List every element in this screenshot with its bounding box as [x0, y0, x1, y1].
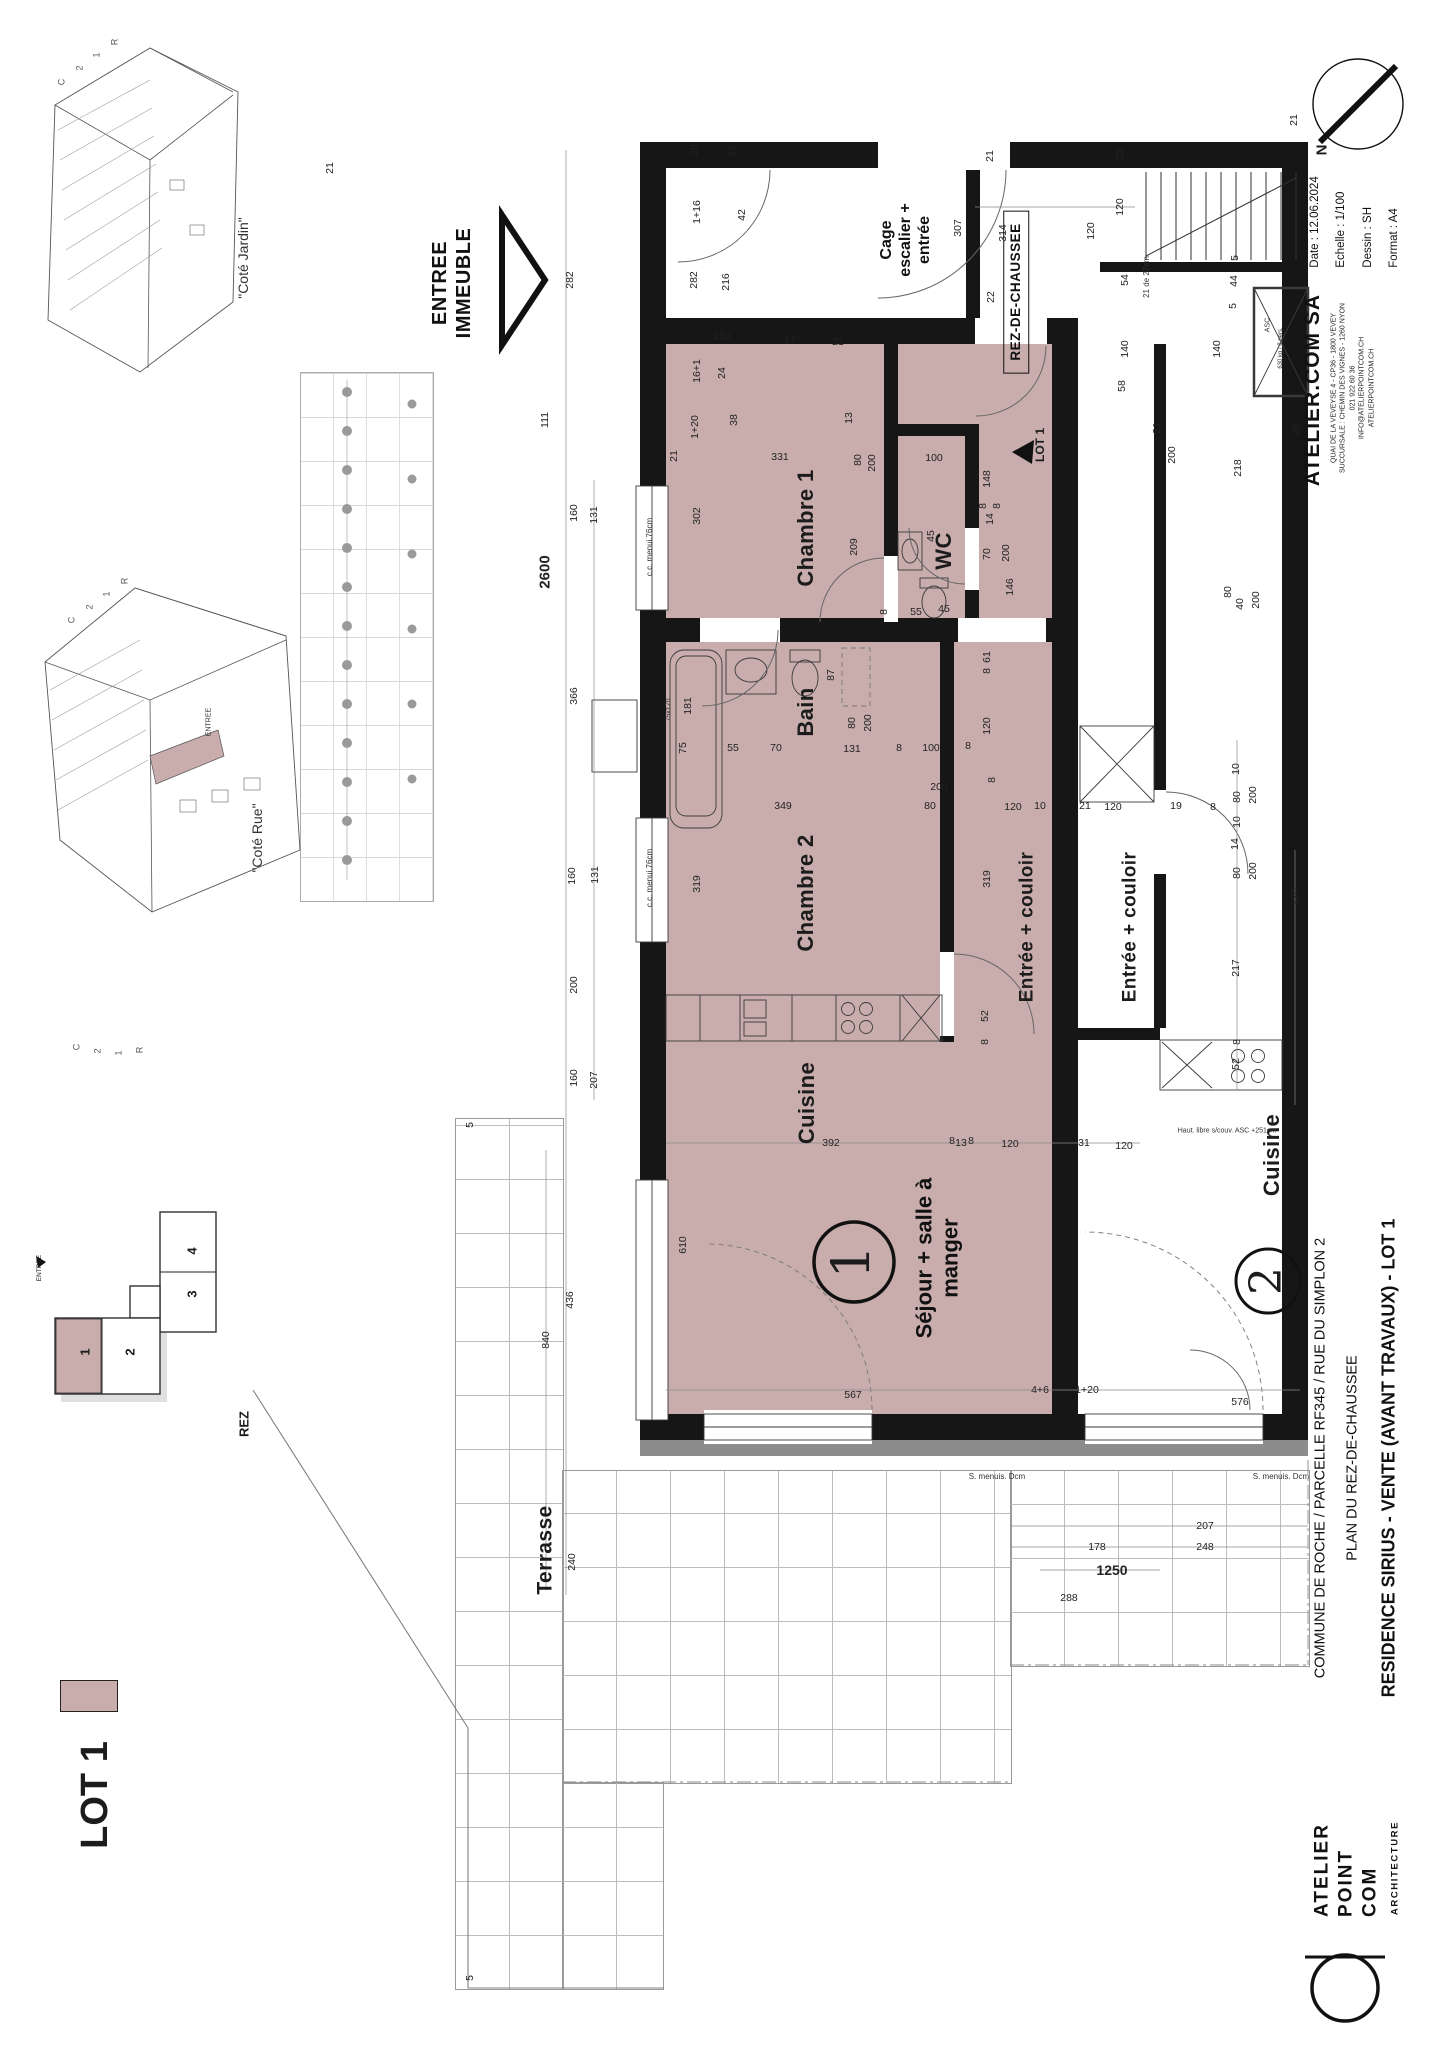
dimension-label: 436 [565, 1291, 576, 1309]
dimension-label: 22 [986, 291, 997, 303]
dimension-label: 140 [1212, 340, 1223, 358]
section-mark: 2 [76, 65, 85, 70]
section-mark: C [73, 1044, 82, 1051]
dimension-label: 26 [1291, 423, 1302, 435]
dimension-label: 8 [987, 777, 998, 783]
dimension-label: 21 [669, 450, 680, 462]
room-label: Entrée + couloir [1121, 852, 1140, 1003]
dimension-label: 2600 [538, 555, 553, 588]
dimension-label: 146 [1005, 578, 1016, 596]
dimension-label: 61 [982, 651, 993, 663]
dimension-label: 282 [689, 271, 700, 289]
terrain-lines [253, 1390, 1308, 1988]
dimension-label: 302 [692, 507, 703, 525]
dimension-label: 131 [590, 866, 601, 884]
dimension-label: 20 [689, 144, 700, 156]
stairs [1146, 172, 1296, 260]
dimension-label: 54 [1120, 274, 1131, 286]
plan-tag: LOT 1 [76, 1741, 114, 1849]
dimension-label: 160 [567, 867, 578, 885]
dimension-label: 288 [1060, 1593, 1078, 1604]
dimension-label: 1250 [1096, 1563, 1127, 1577]
dimension-label: 80 [853, 454, 864, 466]
dimension-label: 120 [1104, 802, 1122, 813]
dimension-label: 8 [980, 1039, 991, 1045]
dimension-label: 1+20 [1075, 1385, 1099, 1396]
dimension-label: 120 [1086, 222, 1097, 240]
dimension-label: 8 [992, 503, 1003, 509]
dimension-label: 181 [683, 697, 694, 715]
dimension-label: 19 [1170, 801, 1182, 812]
room-label: Cuisine [796, 1062, 818, 1144]
dimension-label: 55 [727, 743, 739, 754]
dimension-label: 8 [949, 1136, 955, 1147]
dimension-label: 14 [1230, 838, 1241, 850]
section-mark: R [121, 578, 130, 585]
room-label: Chambre 2 [795, 834, 817, 951]
dimension-label: 42 [737, 209, 748, 221]
dimension-label: 13 [955, 1138, 967, 1149]
dimension-label: 37 [728, 145, 739, 157]
north-arrow-icon [1313, 59, 1403, 149]
unit-number: 1 [826, 1245, 878, 1278]
dimension-label: 100 [922, 743, 940, 754]
room-label-sejour: Séjour + salle à manger [912, 1178, 965, 1339]
dimension-label: 8 [978, 503, 989, 509]
dimension-label: 80 [1232, 791, 1243, 803]
section-mark: 2 [86, 604, 95, 609]
dimension-label: 10 [1231, 763, 1242, 775]
dimension-label: 200 [1001, 544, 1012, 562]
note-label: c.c. menui.76cm [646, 849, 654, 907]
dimension-label: 131 [843, 744, 861, 755]
dimension-label: 58 [1117, 380, 1128, 392]
dimension-label: 45 [926, 530, 937, 542]
note-label: 21 de 27cm [1143, 256, 1151, 298]
entrance-label: ENTREE IMMEUBLE [428, 228, 476, 339]
dimension-label: 319 [982, 870, 993, 888]
kitchen2-counter [1160, 1040, 1282, 1090]
logo-text: ATELIER POINT COM [1310, 1823, 1381, 1917]
dimension-label: 8 [1232, 1039, 1243, 1045]
dimension-label: 120 [1001, 1139, 1019, 1150]
dimension-label: 5 [465, 1122, 476, 1128]
unit-number: 2 [1245, 1267, 1289, 1295]
keyplan-label: 4 [186, 1247, 199, 1254]
project-line2: PLAN DU REZ-DE-CHAUSSEE [1337, 1219, 1369, 1698]
format-field: Format : A4 [1381, 176, 1407, 267]
dimension-label: 240 [567, 1553, 578, 1571]
section-mark: 1 [115, 1050, 124, 1055]
dimension-label: 8 [965, 741, 971, 752]
dimension-label: 840 [541, 1331, 552, 1349]
titleblock-meta: Date : 12.06.2024 Echelle : 1/100 Dessin… [1302, 176, 1408, 267]
dimension-label: 21 [1079, 801, 1091, 812]
dimension-label: 567 [844, 1390, 862, 1401]
dimension-label: 200 [1248, 862, 1259, 880]
dimension-label: 160 [569, 1069, 580, 1087]
dimension-label: 80 [924, 801, 936, 812]
dimension-label: 366 [569, 687, 580, 705]
dimension-label: 8 [982, 668, 993, 674]
dimension-label: 5 [1228, 303, 1239, 309]
dimension-label: 148 [982, 470, 993, 488]
logo-icon [1305, 1955, 1385, 2021]
keyplan-label: ENTREE [37, 1255, 44, 1281]
scale-field: Echelle : 1/100 [1329, 176, 1355, 267]
dimension-label: 52 [1231, 1058, 1242, 1070]
dimension-label: 1+16 [692, 200, 703, 224]
note-label: S. menuis. Dcm [969, 1473, 1025, 1481]
dimension-label: 80 [1223, 586, 1234, 598]
note-label: c.c. menui.76cm [646, 518, 654, 576]
logo-subtitle: ARCHITECTURE [1391, 1821, 1402, 1915]
dimension-label: 21 [832, 337, 844, 348]
section-mark: 1 [93, 52, 102, 57]
dimension-label: 140 [1120, 340, 1131, 358]
plan-tag: N [1315, 145, 1330, 156]
dimension-label: 209 [849, 538, 860, 556]
keyplan-label: 2 [124, 1348, 137, 1355]
dimension-label: 200 [1248, 786, 1259, 804]
dimension-label: 10 [1034, 801, 1046, 812]
view-label: "Coté Rue" [250, 803, 264, 872]
dimension-label: 200 [569, 976, 580, 994]
floor-plan-sheet: Chambre 1WCBainChambre 2Entrée + couloir… [0, 0, 1448, 2047]
dimension-label: 200 [867, 454, 878, 472]
dimension-label: 8 [896, 743, 902, 754]
firm-address: QUAI DE LA VEVEYSE 4 - CP36 - 1800 VEVEY… [1329, 303, 1376, 473]
dimension-label: 44 [1229, 275, 1240, 287]
keyplan-label: 1 [79, 1348, 92, 1355]
dimension-label: 40 [1235, 598, 1246, 610]
dimension-label: 21 [1115, 148, 1126, 160]
dimension-label: 21 [985, 150, 996, 162]
section-mark: R [111, 39, 120, 46]
dimension-label: 80 [1232, 867, 1243, 879]
dimension-label: 217 [1231, 959, 1242, 977]
dimension-label: 250 [713, 331, 731, 342]
dimension-label: 31 [1078, 1138, 1090, 1149]
dimension-label: 80 [847, 717, 858, 729]
view-label: ENTREE [206, 708, 213, 736]
dimension-label: 120 [1290, 888, 1301, 906]
dimension-label: 75 [678, 742, 689, 754]
dimension-label: 307 [953, 219, 964, 237]
dimension-label: 21 [325, 162, 336, 174]
dimension-label: 160 [569, 504, 580, 522]
dimension-label: 4+6 [1031, 1385, 1049, 1396]
dimension-label: 200 [1251, 591, 1262, 609]
dimension-label: 207 [589, 1071, 600, 1089]
dimension-label: 17 [784, 335, 796, 346]
view-label: "Coté Jardin" [236, 217, 250, 299]
dimension-label: 24 [717, 367, 728, 379]
dimension-label: 70 [982, 548, 993, 560]
dimension-label: 216 [721, 273, 732, 291]
note-label: 630 kg / 8 pers. [1278, 327, 1284, 368]
note-label: 75x170 [666, 699, 673, 722]
entrance-arrow-icon [502, 215, 545, 345]
room-label: Entrée + couloir [1018, 852, 1037, 1003]
dimension-label: 5 [465, 1975, 476, 1981]
project-line3: RESIDENCE SIRIUS - VENTE (AVANT TRAVAUX)… [1369, 1219, 1409, 1698]
plant-icons [347, 380, 412, 880]
room-label: Chambre 1 [795, 469, 817, 586]
dimension-label: 207 [1196, 1521, 1214, 1532]
dimension-label: 610 [678, 1236, 689, 1254]
key-plan [36, 1212, 216, 1402]
dimension-label: 31 [1152, 422, 1163, 434]
plan-tag: LOT 1 [1034, 428, 1046, 462]
dimension-label: 319 [692, 875, 703, 893]
dimension-label: 248 [1196, 1542, 1214, 1553]
dimension-label: 331 [771, 452, 789, 463]
room-label: Terrasse [535, 1505, 556, 1594]
section-mark: 2 [94, 1048, 103, 1053]
level-box: REZ-DE-CHAUSSEE [1003, 210, 1029, 373]
stairwell-label: Cage escalier + entrée [877, 203, 935, 276]
dimension-label: 8 [1210, 802, 1216, 813]
dimension-label: 45 [938, 604, 950, 615]
firm-name: ATELIER.COM SA [1301, 294, 1325, 486]
date-field: Date : 12.06.2024 [1302, 176, 1328, 267]
room-label: Cuisine [1261, 1114, 1283, 1196]
dimension-label: 120 [982, 717, 993, 735]
dimension-label: 349 [774, 801, 792, 812]
drawn-field: Dessin : SH [1355, 176, 1381, 267]
dimension-label: 392 [822, 1138, 840, 1149]
note-label: ASC [1265, 318, 1272, 332]
axon-cote-jardin [48, 48, 238, 372]
dimension-label: 55 [910, 607, 922, 618]
dimension-label: 282 [565, 271, 576, 289]
dimension-label: 131 [589, 506, 600, 524]
dimension-label: 120 [1004, 802, 1022, 813]
dimension-label: 21 [1289, 114, 1300, 126]
dimension-label: 13 [844, 412, 855, 424]
lot1-legend-swatch [60, 1680, 118, 1712]
dimension-label: 16+1 [692, 359, 703, 383]
section-mark: R [136, 1047, 145, 1054]
note-label: Haut. libre s/couv. ASC +251cm [1178, 1128, 1277, 1135]
section-mark: 1 [103, 591, 112, 596]
dimension-label: 120 [1115, 1141, 1133, 1152]
room-label: Bain [795, 687, 817, 736]
dimension-label: 87 [826, 669, 837, 681]
dimension-label: 200 [1167, 446, 1178, 464]
dimension-label: 70 [770, 743, 782, 754]
keyplan-label: 3 [186, 1290, 199, 1297]
dimension-label: 200 [930, 782, 948, 793]
section-mark: C [58, 79, 67, 86]
section-mark: C [68, 617, 77, 624]
dimension-label: 8 [879, 609, 890, 615]
project-title-block: COMMUNE DE ROCHE / PARCELLE RF345 / RUE … [1305, 1219, 1408, 1698]
dimension-label: 576 [1231, 1397, 1249, 1408]
dimension-label: 178 [1088, 1542, 1106, 1553]
dimension-label: 100 [925, 453, 943, 464]
dimension-label: 218 [1233, 459, 1244, 477]
dimension-label: 5 [1230, 255, 1241, 261]
dimension-label: 14 [985, 513, 996, 525]
dimension-label: 1+20 [690, 415, 701, 439]
dimension-label: 38 [729, 414, 740, 426]
keyplan-label: REZ [238, 1411, 251, 1437]
dimension-label: 10 [1232, 816, 1243, 828]
dimension-label: 120 [1115, 198, 1126, 216]
dimension-label: 52 [980, 1010, 991, 1022]
dimension-label: 111 [540, 412, 551, 428]
project-line1: COMMUNE DE ROCHE / PARCELLE RF345 / RUE … [1305, 1219, 1337, 1698]
note-label: S. menuis. Dcm [1253, 1473, 1309, 1481]
dimension-label: 8 [968, 1136, 974, 1147]
dimension-label: 200 [863, 714, 874, 732]
